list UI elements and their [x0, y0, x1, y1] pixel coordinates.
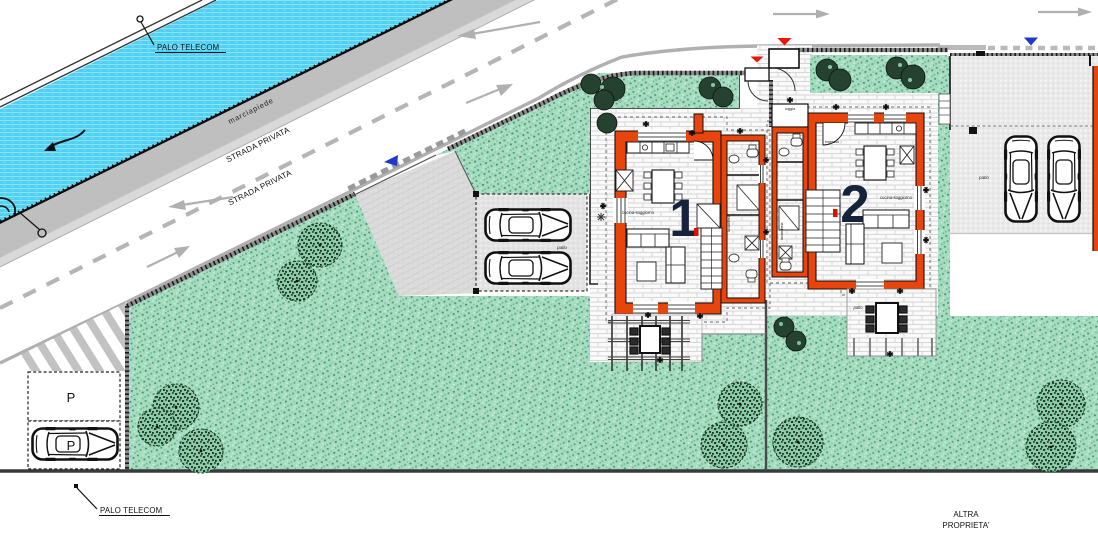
- svg-text:PALO TELECOM: PALO TELECOM: [100, 506, 162, 515]
- svg-text:ALTRA: ALTRA: [953, 510, 979, 519]
- svg-text:patio: patio: [978, 175, 989, 180]
- svg-text:lavanderia: lavanderia: [727, 214, 731, 232]
- svg-text:ingresso: ingresso: [825, 140, 839, 144]
- svg-text:loggia: loggia: [785, 107, 796, 111]
- svg-text:P: P: [67, 438, 76, 453]
- svg-text:PALO TELECOM: PALO TELECOM: [157, 43, 219, 52]
- svg-text:patio: patio: [556, 245, 567, 250]
- svg-text:cucina-soggiorno: cucina-soggiorno: [880, 195, 913, 200]
- svg-text:cucina-soggiorno: cucina-soggiorno: [622, 210, 655, 215]
- svg-text:P: P: [67, 390, 76, 405]
- svg-text:PROPRIETA': PROPRIETA': [942, 521, 990, 530]
- svg-text:1: 1: [669, 189, 698, 248]
- svg-text:patio: patio: [852, 305, 863, 310]
- svg-text:lavanderia: lavanderia: [780, 222, 784, 240]
